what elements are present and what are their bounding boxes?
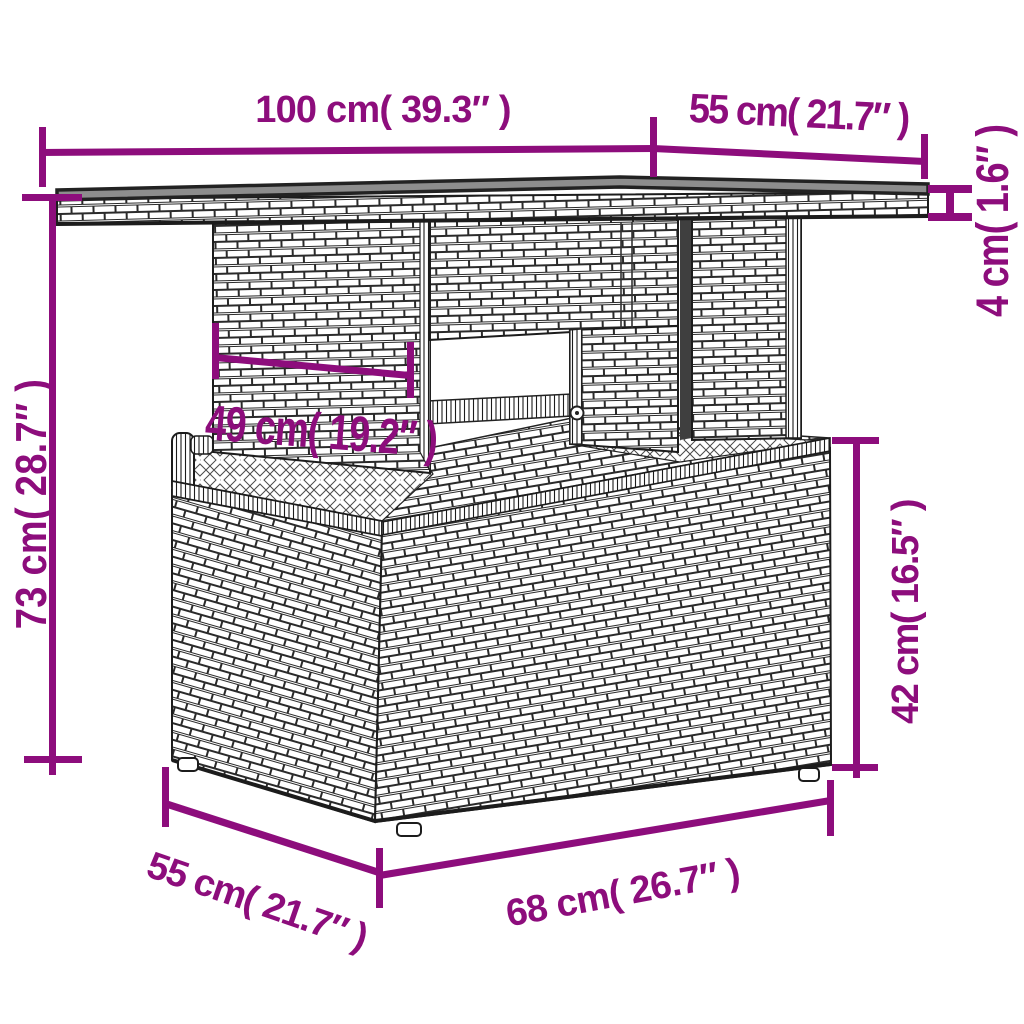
svg-text:73 cm( 28.7″ ): 73 cm( 28.7″ ) (7, 379, 56, 629)
svg-text:42 cm( 16.5″ ): 42 cm( 16.5″ ) (885, 500, 927, 724)
svg-text:4 cm( 1.6″ ): 4 cm( 1.6″ ) (967, 125, 1018, 317)
svg-text:100 cm( 39.3″ ): 100 cm( 39.3″ ) (255, 89, 510, 131)
